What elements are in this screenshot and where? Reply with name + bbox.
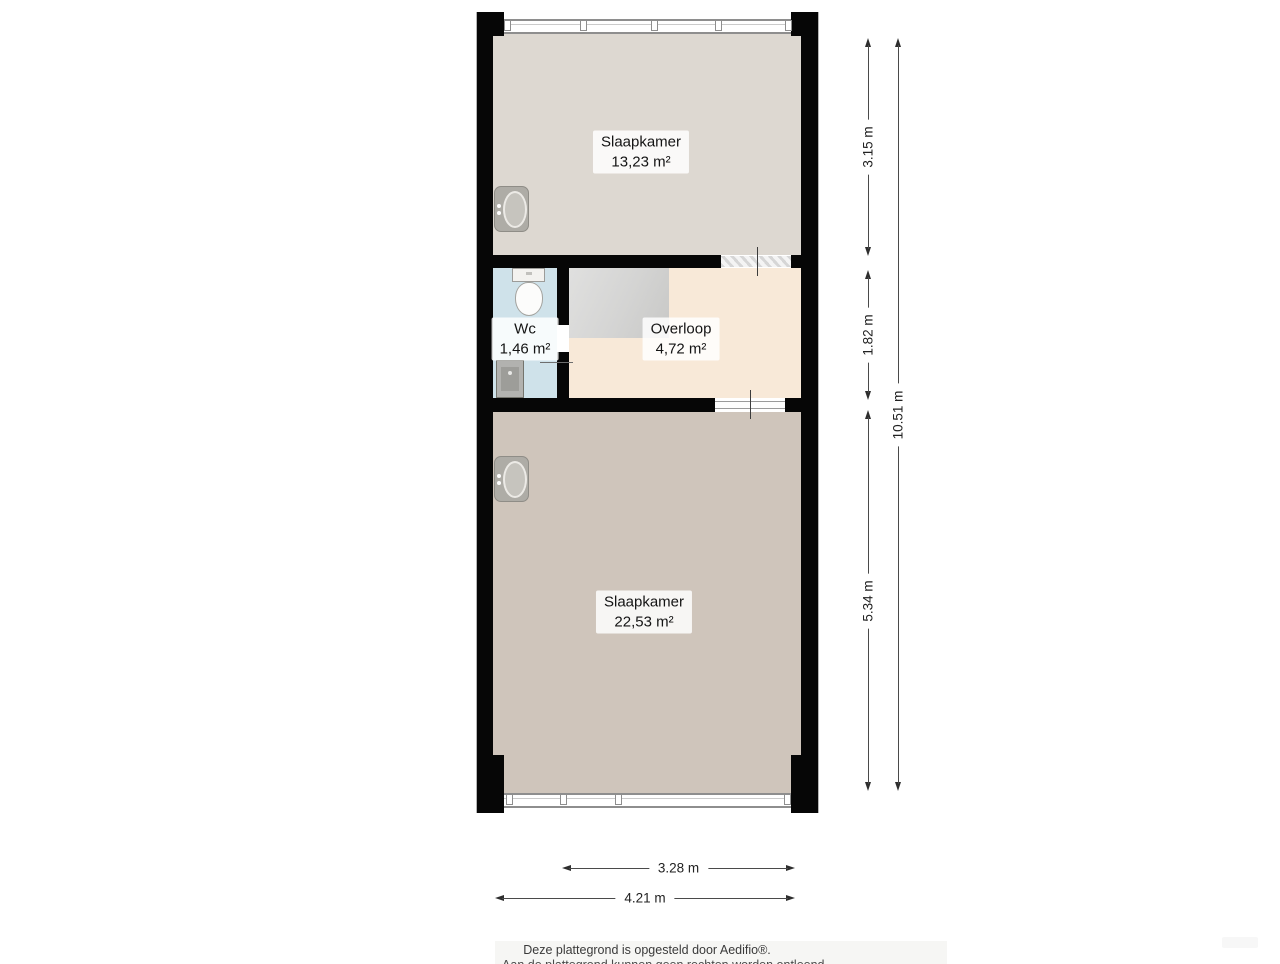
sink-icon: [496, 360, 524, 398]
window-mullion-icon: [580, 20, 587, 31]
room-name: Overloop: [651, 320, 712, 340]
dimension-label: 1.82 m: [861, 307, 876, 362]
window-top: [504, 19, 791, 34]
window-mullion-icon: [506, 794, 513, 805]
wall-wc-partition-upper: [557, 268, 569, 325]
room-name: Slaapkamer: [604, 593, 684, 613]
window-mullion-icon: [651, 20, 658, 31]
washbasin-bowl: [503, 191, 527, 228]
footer-line-1: Deze plattegrond is opgesteld door Aedif…: [523, 943, 771, 957]
dimension-label: 3.28 m: [649, 861, 708, 876]
window-mullion-icon: [785, 20, 792, 31]
room-label-wc: Wc 1,46 m²: [492, 318, 559, 361]
window-glass-line: [504, 24, 791, 25]
tap-dot: [497, 481, 501, 485]
footer-line-2: Aan de plattegrond kunnen geen rechten w…: [502, 958, 828, 964]
watermark: [1222, 937, 1258, 948]
wall-mid-lower-left: [493, 398, 715, 412]
room-label-slaapkamer-top: Slaapkamer 13,23 m²: [593, 131, 689, 174]
window-bottom: [504, 793, 791, 808]
window-mullion-icon: [715, 20, 722, 31]
wall-pier-bottom-left: [477, 755, 504, 813]
wall-pier-top-left: [477, 12, 504, 36]
footer-note: Deze plattegrond is opgesteld door Aedif…: [495, 941, 947, 964]
room-area: 13,23 m²: [601, 152, 681, 172]
floorplan-page: Slaapkamer 13,23 m² Wc 1,46 m² Overloop …: [0, 0, 1280, 964]
room-area: 4,72 m²: [651, 339, 712, 359]
toilet-flush-button: [526, 272, 532, 275]
tap-dot: [508, 371, 512, 375]
door-wc-threshold: [540, 362, 573, 363]
washbasin-icon: [494, 186, 529, 232]
dimension-label: 3.15 m: [861, 119, 876, 174]
wall-pier-bottom-right: [791, 755, 818, 813]
room-label-overloop: Overloop 4,72 m²: [643, 318, 720, 361]
window-mullion-icon: [504, 20, 511, 31]
wall-mid-upper-left: [493, 255, 721, 268]
room-name: Wc: [500, 320, 551, 340]
wall-mid-lower-right: [785, 398, 801, 412]
wall-wc-partition-lower: [557, 352, 569, 398]
door-slaapkamer-top: [721, 256, 791, 267]
door-tick: [750, 390, 751, 419]
tap-dot: [497, 204, 501, 208]
dimension-label: 5.34 m: [861, 573, 876, 628]
window-mullion-icon: [560, 794, 567, 805]
floorplan: Slaapkamer 13,23 m² Wc 1,46 m² Overloop …: [0, 0, 1280, 964]
door-tick: [757, 247, 758, 276]
tap-dot: [497, 211, 501, 215]
room-area: 1,46 m²: [500, 339, 551, 359]
window-mullion-icon: [784, 794, 791, 805]
room-area: 22,53 m²: [604, 612, 684, 632]
window-mullion-icon: [615, 794, 622, 805]
wall-pier-top-right: [791, 12, 818, 36]
room-name: Slaapkamer: [601, 133, 681, 153]
washbasin-bowl: [503, 461, 527, 498]
washbasin-icon: [494, 456, 529, 502]
room-label-slaapkamer-bottom: Slaapkamer 22,53 m²: [596, 591, 692, 634]
wall-mid-upper-right: [791, 255, 801, 268]
wall-left: [477, 12, 493, 813]
window-glass-line: [504, 798, 791, 799]
wall-right: [801, 12, 818, 813]
tap-dot: [497, 474, 501, 478]
dimension-label: 10.51 m: [891, 383, 906, 446]
dimension-label: 4.21 m: [615, 891, 674, 906]
toilet-icon: [512, 268, 545, 282]
toilet-bowl: [515, 282, 543, 316]
